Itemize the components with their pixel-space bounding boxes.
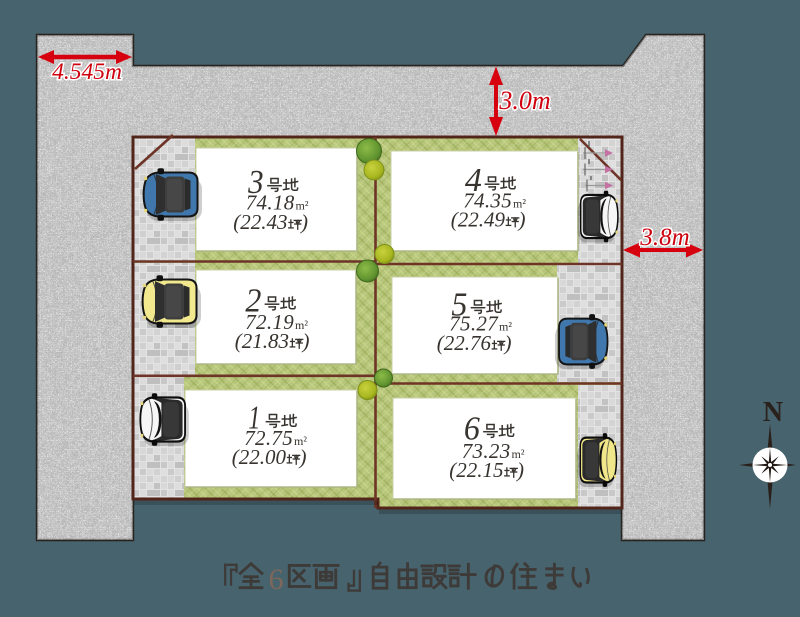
svg-text:N: N: [763, 397, 783, 428]
svg-text:(21.83: (21.83: [235, 329, 289, 353]
svg-text:(22.43: (22.43: [233, 210, 287, 234]
svg-text:(22.76: (22.76: [437, 331, 492, 355]
svg-text:): ): [302, 329, 310, 353]
svg-text:): ): [518, 208, 526, 232]
svg-text:4.545m: 4.545m: [52, 59, 122, 85]
svg-text:): ): [516, 458, 524, 482]
svg-text:3.0m: 3.0m: [498, 86, 550, 115]
svg-text:(22.15: (22.15: [449, 458, 503, 482]
svg-text:): ): [300, 210, 308, 234]
svg-text:(22.00: (22.00: [232, 445, 287, 469]
svg-text:3.8m: 3.8m: [639, 224, 689, 251]
svg-text:(22.49: (22.49: [451, 208, 506, 232]
svg-text:): ): [299, 445, 307, 469]
svg-text:): ): [504, 331, 512, 355]
svg-text:6: 6: [269, 563, 284, 596]
